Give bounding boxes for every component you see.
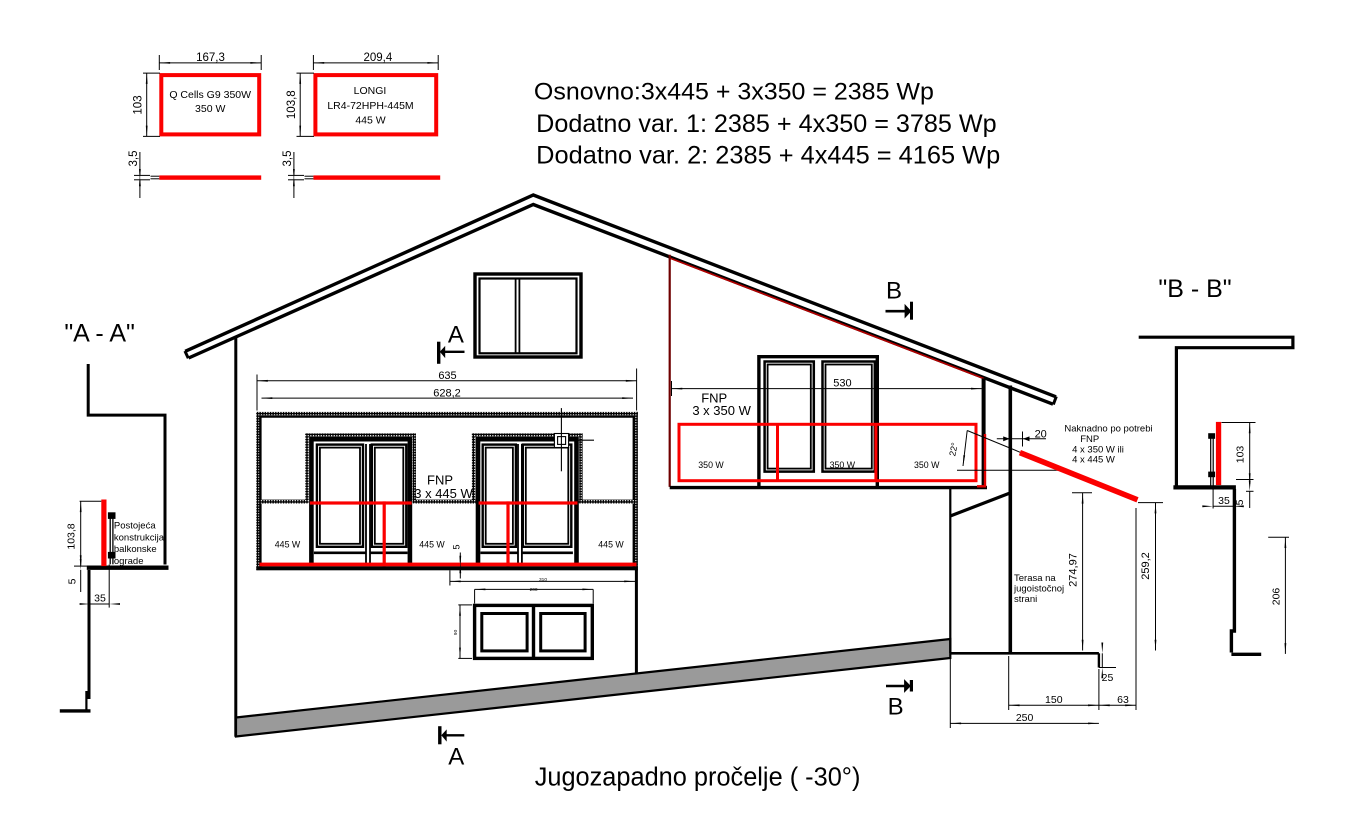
svg-text:Dodatno var. 1: 2385 + 4x350 =: Dodatno var. 1: 2385 + 4x350 = 3785 Wp [536, 110, 996, 138]
svg-text:B: B [888, 694, 904, 721]
svg-text:445 W: 445 W [419, 539, 445, 549]
svg-text:strani: strani [1014, 594, 1037, 605]
svg-text:350 W: 350 W [195, 103, 225, 115]
svg-text:274,97: 274,97 [1068, 553, 1080, 587]
svg-text:206: 206 [1270, 588, 1282, 606]
svg-text:103: 103 [133, 95, 145, 114]
svg-text:167,3: 167,3 [196, 52, 225, 64]
svg-text:FNP: FNP [1080, 434, 1099, 445]
svg-text:konstrukcija: konstrukcija [114, 532, 165, 543]
svg-text:5: 5 [66, 578, 78, 584]
svg-text:LONGI: LONGI [354, 85, 387, 97]
svg-text:530: 530 [833, 377, 851, 389]
svg-text:"B - B": "B - B" [1158, 275, 1231, 303]
svg-text:259,2: 259,2 [1140, 552, 1152, 580]
svg-text:35: 35 [94, 593, 106, 605]
svg-text:3,5: 3,5 [282, 151, 294, 167]
svg-text:90: 90 [453, 629, 459, 635]
svg-text:103,8: 103,8 [65, 523, 77, 549]
svg-text:150: 150 [1045, 694, 1063, 706]
svg-text:250: 250 [1016, 712, 1034, 724]
svg-text:445 W: 445 W [275, 539, 301, 549]
svg-text:628,2: 628,2 [433, 387, 461, 399]
svg-text:350 W: 350 W [698, 460, 724, 470]
svg-text:Dodatno var. 2: 2385 + 4x445 =: Dodatno var. 2: 2385 + 4x445 = 4165 Wp [536, 142, 1000, 170]
svg-text:Naknadno po potrebi: Naknadno po potrebi [1064, 423, 1152, 434]
svg-text:5: 5 [1234, 499, 1246, 505]
svg-text:445 W: 445 W [598, 539, 624, 549]
svg-text:jugoistočnoj: jugoistočnoj [1013, 584, 1064, 595]
svg-text:103: 103 [1235, 446, 1247, 464]
svg-text:balkonske: balkonske [114, 544, 157, 555]
svg-text:103,8: 103,8 [286, 90, 298, 119]
svg-text:350 W: 350 W [914, 460, 940, 470]
svg-text:200: 200 [530, 587, 538, 593]
svg-text:35: 35 [1218, 495, 1230, 507]
svg-text:Q Cells G9 350W: Q Cells G9 350W [169, 89, 251, 101]
svg-text:20: 20 [1035, 428, 1047, 440]
svg-text:63: 63 [1117, 694, 1129, 706]
svg-text:209,4: 209,4 [364, 52, 393, 64]
svg-text:Postojeća: Postojeća [114, 521, 156, 532]
svg-text:ograde: ograde [114, 556, 144, 567]
svg-text:Jugozapadno pročelje ( -30°): Jugozapadno pročelje ( -30°) [535, 764, 861, 792]
svg-text:445 W: 445 W [355, 114, 385, 126]
svg-text:5: 5 [452, 544, 462, 549]
svg-text:3,5: 3,5 [128, 151, 140, 167]
svg-text:Terasa na: Terasa na [1014, 573, 1056, 584]
svg-text:4 x 350 W ili: 4 x 350 W ili [1072, 444, 1124, 455]
svg-text:A: A [448, 322, 464, 349]
svg-text:LR4-72HPH-445M: LR4-72HPH-445M [327, 100, 413, 112]
svg-text:Osnovno:3x445 + 3x350 = 2385 W: Osnovno:3x445 + 3x350 = 2385 Wp [534, 79, 934, 106]
svg-text:310: 310 [539, 577, 547, 583]
svg-text:4 x 445 W: 4 x 445 W [1072, 455, 1115, 466]
svg-text:"A - A": "A - A" [64, 320, 135, 348]
svg-text:25: 25 [1102, 672, 1114, 684]
svg-text:B: B [886, 278, 902, 305]
svg-text:3 x 350 W: 3 x 350 W [692, 403, 751, 418]
svg-text:A: A [448, 743, 464, 770]
svg-text:635: 635 [438, 370, 456, 382]
svg-text:3 x 445 W: 3 x 445 W [414, 486, 473, 501]
